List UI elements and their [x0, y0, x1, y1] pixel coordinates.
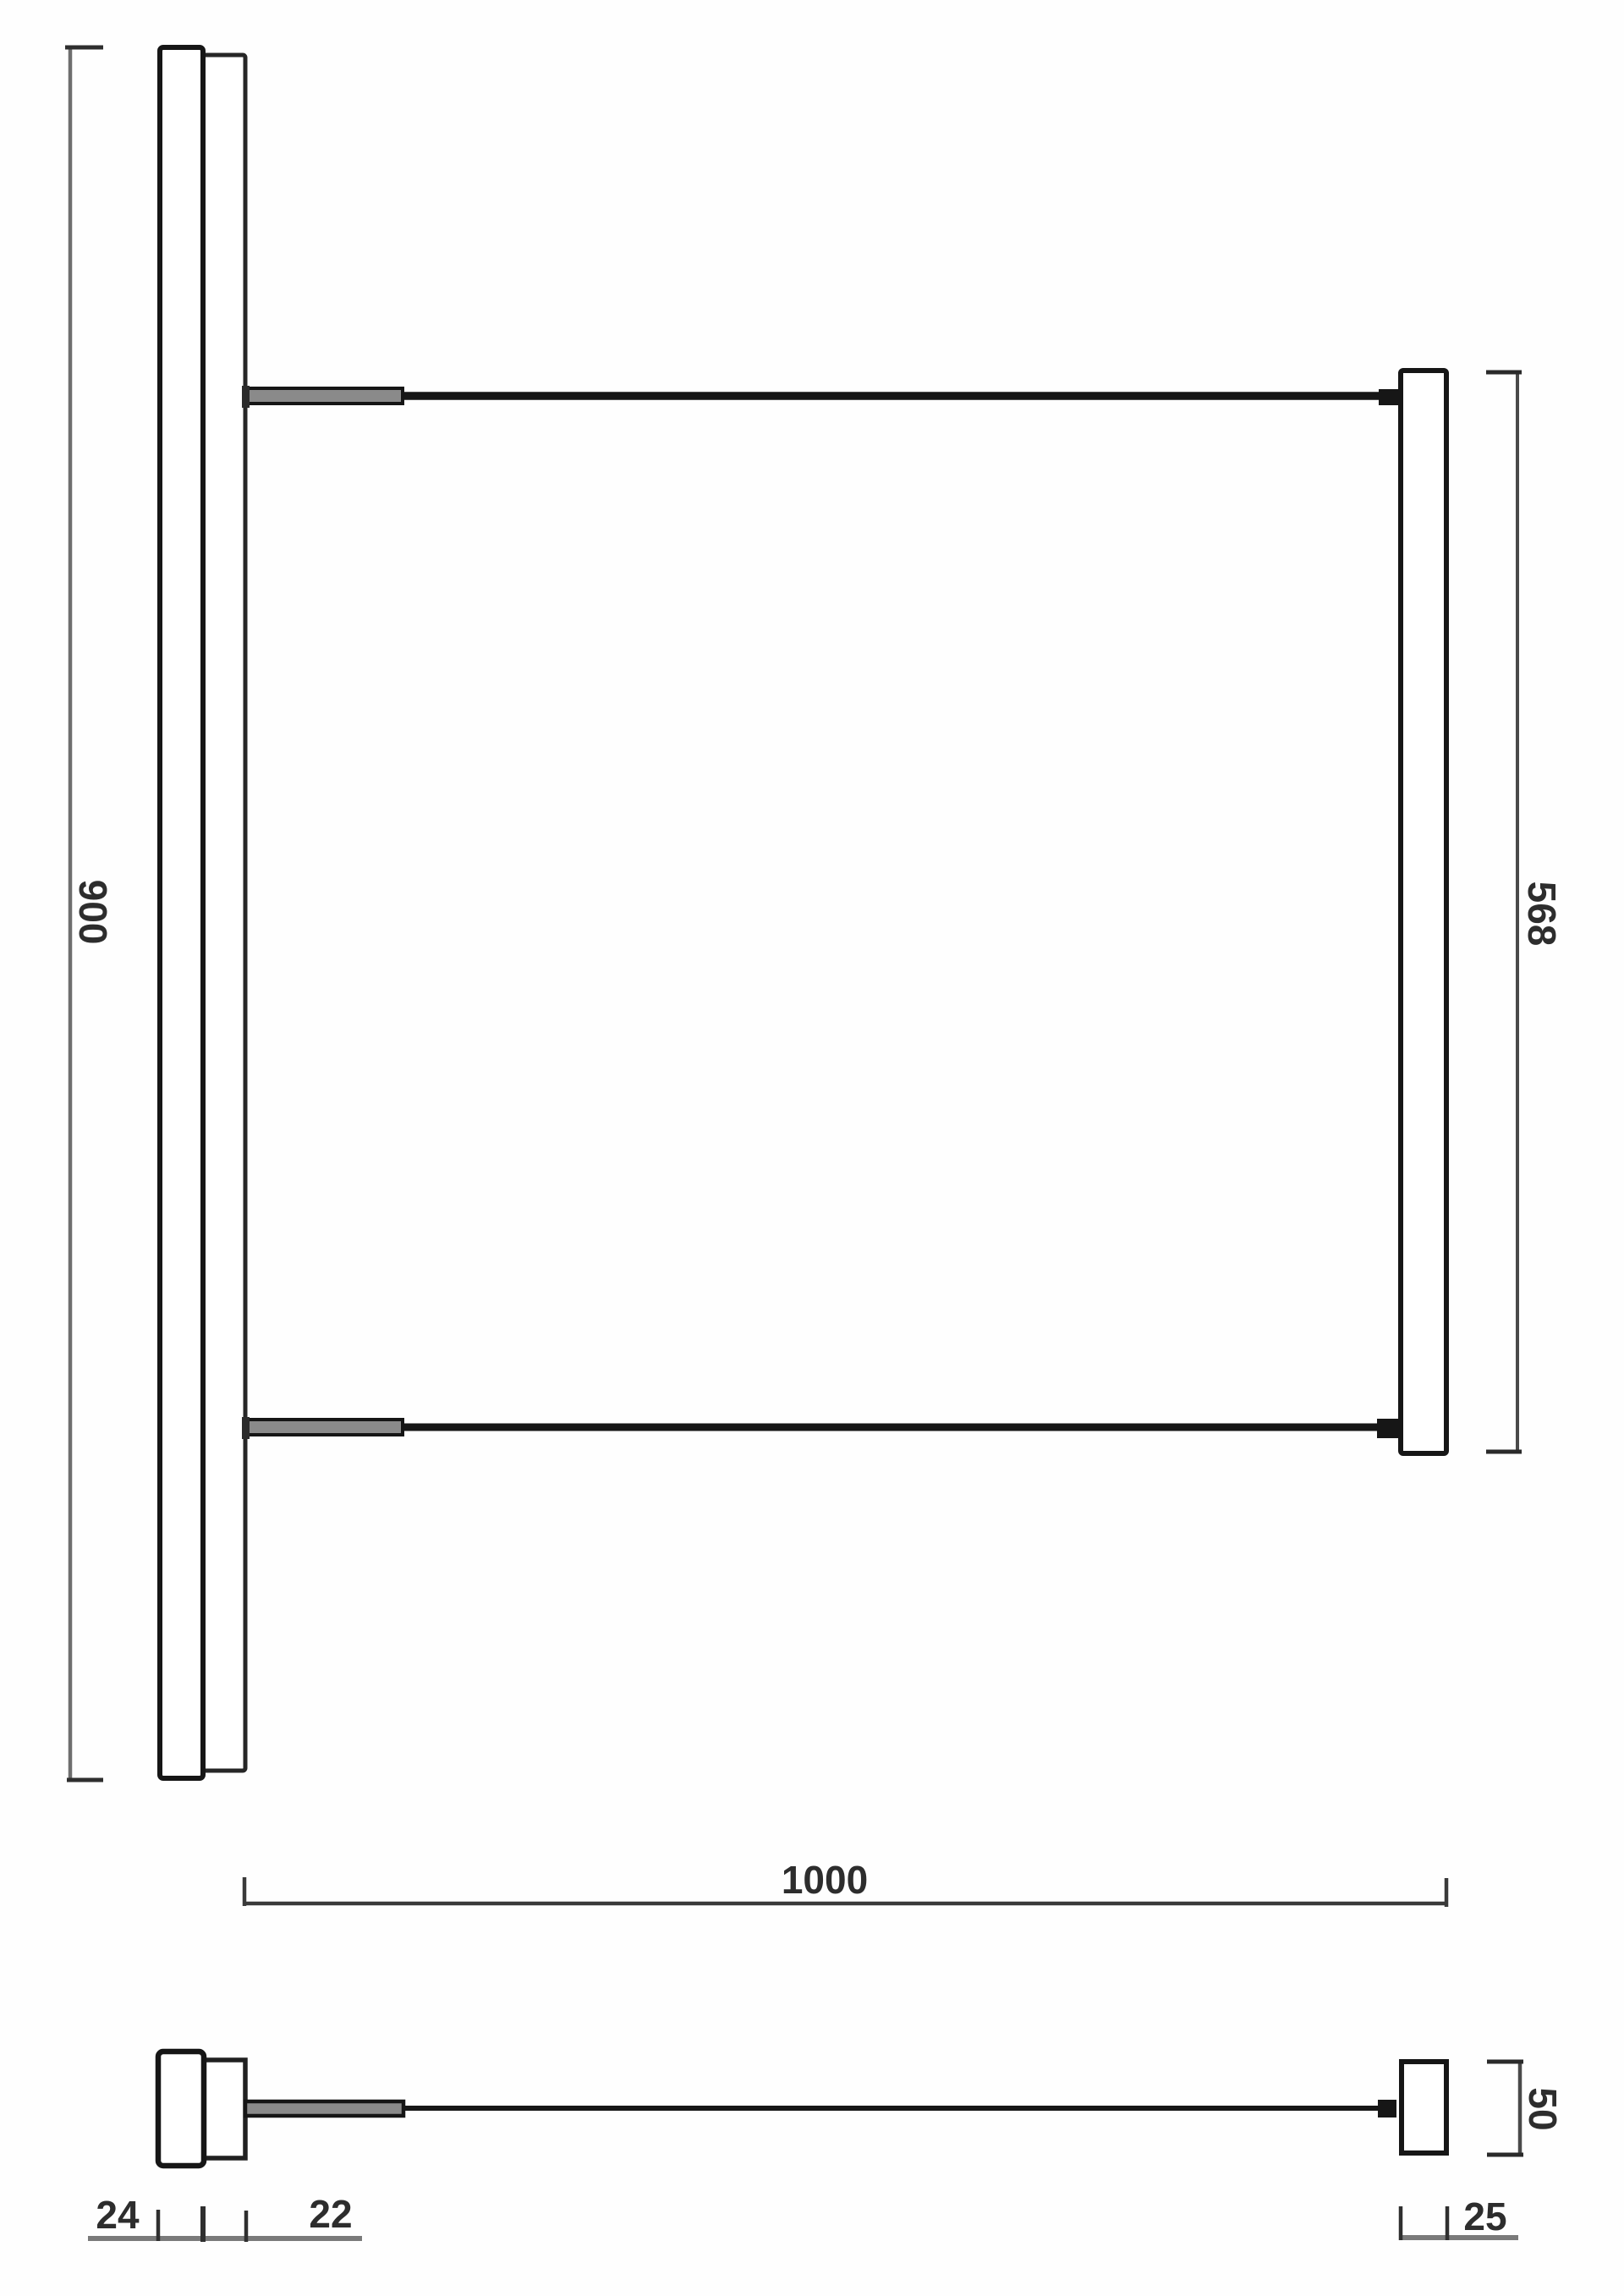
svg-text:568: 568	[1520, 882, 1564, 947]
svg-text:900: 900	[71, 880, 115, 945]
svg-text:25: 25	[1463, 2194, 1506, 2238]
svg-text:50: 50	[1521, 2087, 1565, 2130]
svg-text:1000: 1000	[782, 1858, 868, 1902]
svg-text:24: 24	[96, 2193, 140, 2237]
svg-text:22: 22	[309, 2192, 352, 2236]
